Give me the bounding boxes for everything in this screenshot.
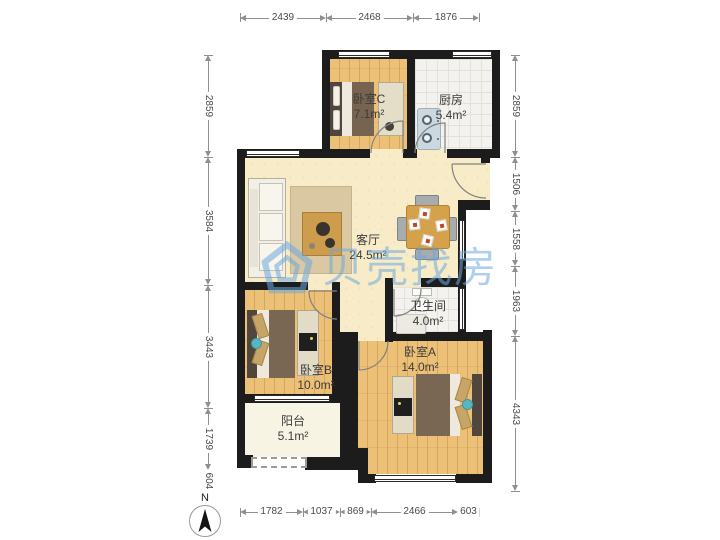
- dim-segment: 3443: [200, 285, 216, 408]
- window: [338, 51, 390, 58]
- dim-segment: 1037: [303, 504, 340, 520]
- compass: N: [186, 492, 224, 537]
- wall: [481, 149, 490, 163]
- wall: [421, 278, 466, 287]
- room-label-bedroom-c: 卧室C 7.1m²: [353, 92, 386, 122]
- dim-segment: 1506: [507, 157, 523, 211]
- room-label-bedroom-b: 卧室B 10.0m²: [297, 363, 334, 393]
- window: [246, 150, 300, 157]
- room-name: 卧室A: [401, 345, 438, 360]
- bed-a-headboard: [472, 374, 482, 436]
- tv: [394, 398, 412, 416]
- bedroom-c-door-opening: [370, 149, 403, 158]
- bed-b-blanket: [269, 310, 295, 378]
- entry-vestibule-floor: [458, 158, 481, 200]
- room-area: 7.1m²: [353, 107, 386, 122]
- wall: [407, 50, 415, 158]
- dim-segment: 1963: [507, 266, 523, 336]
- dim-segment: 869: [340, 504, 371, 520]
- bed-b-decor: [251, 338, 262, 349]
- room-name: 阳台: [278, 414, 309, 429]
- wall: [403, 149, 417, 158]
- tv: [299, 333, 317, 351]
- dim-segment: 2439: [240, 10, 326, 26]
- dim-segment: 1782: [240, 504, 303, 520]
- sofa: [248, 178, 286, 278]
- floor-plan: 卧室C 7.1m² 厨房 5.4m² 客厅 24.5m² 卫生间 4.0m² 卧…: [0, 0, 720, 540]
- wall: [322, 149, 370, 158]
- bed-c-sheet: [342, 82, 352, 136]
- dim-segment: 1876: [413, 10, 479, 26]
- wall: [305, 457, 356, 470]
- room-name: 客厅: [349, 233, 386, 248]
- wall: [322, 50, 330, 158]
- dim-segment: 603: [458, 504, 479, 520]
- compass-needle-icon: [190, 506, 220, 536]
- room-label-balcony: 阳台 5.1m²: [278, 414, 309, 444]
- window: [374, 475, 456, 482]
- wall: [237, 282, 308, 290]
- wall: [483, 330, 492, 483]
- window: [459, 220, 465, 260]
- window: [452, 51, 492, 58]
- bed-c-pillow: [333, 110, 340, 130]
- window: [459, 288, 465, 330]
- room-label-living: 客厅 24.5m²: [349, 233, 386, 263]
- dim-segment: 2466: [371, 504, 458, 520]
- room-area: 14.0m²: [401, 360, 438, 375]
- balcony-window-dashed: [251, 457, 307, 468]
- dim-segment: 3584: [200, 157, 216, 285]
- room-name: 厨房: [436, 93, 467, 108]
- wall: [492, 50, 500, 158]
- dim-segment: 1558: [507, 211, 523, 266]
- bathroom-door-opening: [393, 278, 421, 287]
- compass-circle: [189, 505, 221, 537]
- room-area: 4.0m²: [410, 314, 446, 329]
- compass-north-label: N: [186, 492, 224, 504]
- dim-segment: 2859: [200, 55, 216, 157]
- room-name: 卧室C: [353, 92, 386, 107]
- entry-door-opening: [481, 163, 490, 200]
- room-label-kitchen: 厨房 5.4m²: [436, 93, 467, 123]
- room-label-bedroom-a: 卧室A 14.0m²: [401, 345, 438, 375]
- dim-segment: 2859: [507, 55, 523, 157]
- room-area: 5.1m²: [278, 429, 309, 444]
- room-area: 24.5m²: [349, 248, 386, 263]
- dim-segment: 604: [200, 470, 216, 491]
- dining-table: [406, 205, 450, 249]
- kitchen-door-opening: [417, 149, 447, 158]
- coffee-table: [302, 212, 342, 256]
- bed-a-blanket: [416, 374, 450, 436]
- bed-a-decor: [462, 399, 473, 410]
- dim-segment: 2468: [326, 10, 413, 26]
- window: [254, 395, 330, 402]
- dining-chair: [415, 249, 439, 260]
- wall: [456, 474, 492, 483]
- room-area: 5.4m²: [436, 108, 467, 123]
- room-area: 10.0m²: [297, 378, 334, 393]
- hallway-floor: [340, 282, 385, 332]
- room-name: 卫生间: [410, 299, 446, 314]
- wall: [447, 149, 500, 158]
- wall: [237, 149, 245, 468]
- room-label-bathroom: 卫生间 4.0m²: [410, 299, 446, 329]
- stool: [385, 122, 394, 131]
- dim-segment: 1739: [200, 408, 216, 470]
- toilet-tank: [412, 288, 432, 296]
- bed-c-pillow: [333, 86, 340, 106]
- dim-segment: 4343: [507, 336, 523, 491]
- wall: [340, 332, 358, 470]
- room-name: 卧室B: [297, 363, 334, 378]
